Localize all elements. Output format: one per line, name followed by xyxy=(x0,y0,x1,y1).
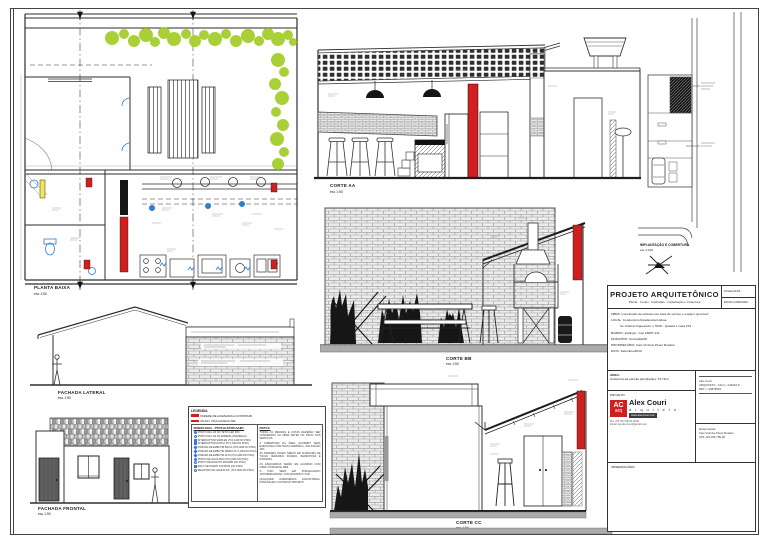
project-info: OBRA: Construção de edícula com área de … xyxy=(608,309,755,371)
sheet-number: FOLHA 01/02 xyxy=(722,286,755,298)
highlight-strip xyxy=(40,180,45,198)
proprietario-line: PROPRIETÁRIO: Caio Vinícius Pérez Rosári… xyxy=(611,343,752,348)
fachada-lateral-scale: esc 1:50 xyxy=(58,396,71,400)
lower-ground-band xyxy=(330,528,612,534)
simbologia-title: SIMBOLOGIA - PTOS ELÉTRICA/HID. xyxy=(194,426,256,430)
new-roof-hatch xyxy=(670,77,691,113)
observacoes-cell: OBSERVAÇÕES: xyxy=(608,463,755,531)
notas-title: NOTAS: xyxy=(260,426,321,430)
symbol-icon xyxy=(194,431,197,434)
logo-profession: a r q u i t e t o xyxy=(629,407,677,412)
nota: QUALQUER DIVERGÊNCIA ENCONTRADA, COMUNIC… xyxy=(260,478,321,484)
symbol-label: TOMADA DE EMBUTIR ALTA (H=2,00M DO PISO) xyxy=(198,454,255,457)
hatch-strip xyxy=(573,452,582,506)
local-line2: Av. Antônio Figueiredo n. 5100 - Quadra … xyxy=(611,324,752,329)
water-tank-icon xyxy=(584,38,626,68)
fachada-frontal-scale: esc 1:50 xyxy=(38,512,51,516)
existing-wall-tiles xyxy=(530,54,544,78)
car-icon xyxy=(652,158,665,184)
cabinet xyxy=(524,436,562,506)
new-column-red xyxy=(468,84,478,178)
corte-aa-scale: esc 1:50 xyxy=(330,190,343,194)
ground-band xyxy=(330,512,586,518)
cabinets-right xyxy=(480,112,508,178)
section-aa-drawing: CORTE AA esc 1:50 xyxy=(308,24,642,198)
symbol-icon xyxy=(194,465,197,468)
corte-bb-label: CORTE BB xyxy=(446,356,472,361)
fachada-frontal-label: FACHADA FRONTAL xyxy=(38,506,86,511)
symbol-label: INTERRUPTOR DUPLO (H=1,10M DO PISO) xyxy=(198,442,249,445)
red-fill-swatch xyxy=(191,414,199,417)
responsavel-cell: Responsável: Caio Vinícius Pérez Rosário… xyxy=(696,424,755,462)
legend-item: PAREDE DE ALVENARIA A CONSTRUIR xyxy=(191,414,323,418)
symbol-label: TOMADA DE EMBUTIR MÉDIA (H=1,10M DO PISO… xyxy=(198,450,257,453)
stove-unit xyxy=(415,140,445,178)
project-title: PROJETO ARQUITETÔNICO xyxy=(610,290,719,299)
house-door xyxy=(574,98,602,178)
implantacao-label: IMPLANTAÇÃO E COBERTURA xyxy=(640,242,690,247)
nota: AS ESQUADRIAS SERÃO EM ALUMÍNIO COM VIDR… xyxy=(260,463,321,469)
data-line: DATA: Setembro/2019 xyxy=(611,349,752,354)
window-right xyxy=(134,464,149,479)
section-bb-drawing: CORTE BB esc 1:50 xyxy=(320,196,614,368)
symbol-label: PONTO DE LUZ NO TETO (LED 9W) xyxy=(198,431,240,434)
project-subtitle: Planta - Cortes - Fachadas - Implantação… xyxy=(629,300,701,304)
municipio-line: MUNICÍPIO: Sorocaba/SP xyxy=(611,337,752,342)
corte-cc-label: CORTE CC xyxy=(456,520,482,525)
logo-name: Alex Couri xyxy=(629,399,677,407)
simbologia-column: SIMBOLOGIA - PTOS ELÉTRICA/HID. PONTO DE… xyxy=(192,425,258,501)
logo-arq: arq xyxy=(615,409,622,414)
obs-title: OBSERVAÇÕES: xyxy=(611,465,635,469)
vegetation-circles xyxy=(105,27,297,170)
barrel xyxy=(558,316,572,343)
pergola-battens xyxy=(148,80,215,158)
legend-item-label: PILAR / VIGA A EXECUTAR xyxy=(201,419,236,423)
new-column-red xyxy=(573,225,582,280)
symbol-label: RALO SIFONADO 15X15CM (NO PISO) xyxy=(198,465,243,468)
annotation-texture xyxy=(52,177,283,251)
nota: A COBERTURA DA ÁREA GOURMET SERÁ EXECUTA… xyxy=(260,442,321,451)
roof-tiles xyxy=(50,418,168,446)
logo-mark: AC arq xyxy=(610,400,627,417)
symbol-label: PONTO DE LUZ NA PAREDE (ARANDELA) xyxy=(198,435,247,438)
brick-block xyxy=(186,319,294,385)
site-plan-drawing: IMPLANTAÇÃO E COBERTURA esc 1:100 xyxy=(638,6,760,280)
existing-wall-brick xyxy=(530,118,544,136)
planta-baixa-label: PLANTA BAIXA xyxy=(34,285,71,290)
new-column-red xyxy=(577,391,585,449)
north-arrow-icon xyxy=(646,256,672,274)
symbol-icon xyxy=(194,469,197,472)
arch-rrt: RRT n. 00876543 xyxy=(699,387,752,391)
architect-cell: Alex Couri ARQUITETO - CAU n. A43210-5 R… xyxy=(696,371,755,424)
corte-aa-label: CORTE AA xyxy=(330,183,356,188)
symbol-label: TOMADA DE EMBUTIR BAIXA (H=0,30M DO PISO… xyxy=(198,446,256,449)
area-value: Cobertura da edícula (ampliação): 76,73m… xyxy=(610,377,693,381)
brick-counter xyxy=(318,112,437,136)
architect-logo: AC arq Alex Couri a r q u i t e t o www.… xyxy=(610,399,693,418)
projeto-cell: PROJETO: AC arq Alex Couri a r q u i t e… xyxy=(608,391,695,462)
symbol-label: INTERRUPTOR SIMPLES (H=1,10M DO PISO) xyxy=(198,439,251,442)
tall-cabinet xyxy=(445,114,468,178)
floor-plan-drawing: PLANTA BAIXA esc 1:50 xyxy=(12,8,314,300)
nota: AS PAREDES NOVAS SERÃO EM ALVENARIA DE T… xyxy=(260,452,321,461)
roof-slope xyxy=(475,391,582,434)
symbol-icon xyxy=(194,439,197,442)
symbol-label: PONTO DE ESGOTO Ø100MM (NO PISO) xyxy=(198,461,246,464)
area-cell: ÁREA: Cobertura da edícula (ampliação): … xyxy=(608,371,695,391)
symbol-label: PONTO DE ÁGUA FRIA (H=0,60M DO PISO) xyxy=(198,458,249,461)
bairro-line: BAIRRO: Ipatinga - Cep 18087-131 xyxy=(611,331,752,336)
contact-email: Email: ale.alexcouri@gmail.com xyxy=(610,423,693,427)
notas-column: NOTAS: TODAS AS MEDIDAS E COTAS DEVERÃO … xyxy=(258,425,322,501)
front-elevation-drawing: FACHADA FRONTAL esc 1:50 xyxy=(26,404,192,516)
header-beam xyxy=(370,384,478,406)
projeto-title: PROJETO: xyxy=(610,393,693,397)
column-hatch xyxy=(120,180,128,215)
symbol-label: REGISTRO DE GAVETA 3/4" (H=1,80M DO PISO… xyxy=(198,469,254,472)
roof-tile-band xyxy=(318,48,545,81)
legend-item-label: PAREDE DE ALVENARIA A CONSTRUIR xyxy=(201,414,253,418)
sheet-scale: ESCALA INDICADA xyxy=(722,298,755,309)
fachada-lateral-label: FACHADA LATERAL xyxy=(58,390,106,395)
side-elevation-drawing: FACHADA LATERAL esc 1:50 xyxy=(26,294,316,406)
plan-appliances xyxy=(140,255,280,277)
symbol-icon xyxy=(194,435,197,438)
resp-doc: CPF 123.456.789-00 xyxy=(699,435,752,439)
door-right xyxy=(114,458,129,499)
ground-band xyxy=(320,345,614,352)
title-block: PROJETO ARQUITETÔNICO Planta - Cortes - … xyxy=(607,285,756,532)
obra-line: OBRA: Construção de edícula com área de … xyxy=(611,312,752,317)
nota: O PISO SERÁ EM PORCELANATO ANTIDERRAPANT… xyxy=(260,470,321,476)
door-left xyxy=(39,458,59,501)
drawing-sheet: PLANTA BAIXA esc 1:50 xyxy=(0,0,768,541)
large-opening xyxy=(384,406,482,511)
nota: TODAS AS MEDIDAS E COTAS DEVERÃO SER CON… xyxy=(260,431,321,440)
red-outline-swatch xyxy=(191,420,199,422)
window-left xyxy=(78,456,99,478)
section-cc-drawing: CORTE CC esc 1:50 xyxy=(328,364,616,541)
stool xyxy=(496,459,514,506)
brick-pillar xyxy=(562,452,572,506)
logo-website: www.alexcouri.com xyxy=(629,413,657,418)
bar-stools xyxy=(327,138,395,176)
implantacao-scale: esc 1:100 xyxy=(640,248,653,252)
symbol-icon xyxy=(194,461,197,464)
steps xyxy=(398,152,414,176)
legend-title: LEGENDA xyxy=(191,409,323,413)
legend-item: PILAR / VIGA A EXECUTAR xyxy=(191,419,323,423)
local-line: LOCAL: Condomínio Residencial Lisboa xyxy=(611,318,752,323)
legend-box: LEGENDA PAREDE DE ALVENARIA A CONSTRUIR … xyxy=(188,406,326,508)
